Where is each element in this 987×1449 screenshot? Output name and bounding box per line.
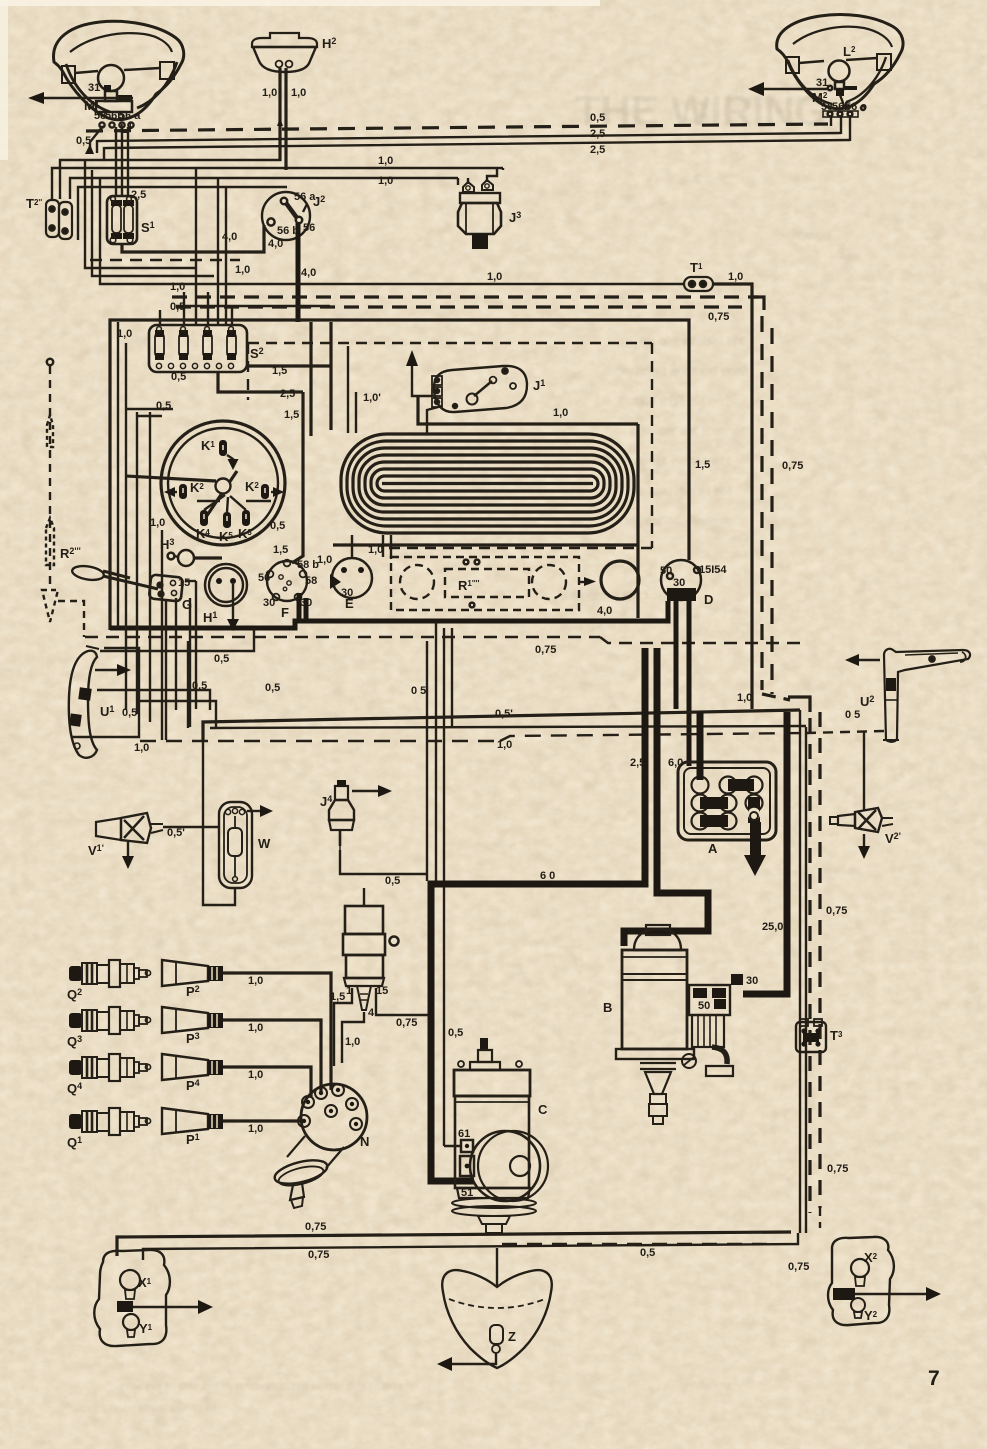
svg-text:0,5: 0,5	[171, 371, 186, 383]
svg-text:1,0: 1,0	[248, 1123, 263, 1135]
svg-text:0,75: 0,75	[308, 1249, 329, 1261]
svg-text:0,75: 0,75	[788, 1261, 809, 1273]
svg-text:1,0: 1,0	[248, 1069, 263, 1081]
svg-text:0,75: 0,75	[535, 644, 556, 656]
svg-text:0,5: 0,5	[170, 301, 185, 313]
svg-text:30: 30	[673, 577, 685, 589]
svg-text:1,0: 1,0	[317, 554, 332, 566]
svg-text:56: 56	[303, 222, 315, 234]
svg-text:0,5: 0,5	[640, 1247, 655, 1259]
svg-text:58: 58	[305, 575, 317, 587]
svg-text:58 b: 58 b	[297, 559, 319, 571]
svg-text:1,0: 1,0	[345, 1036, 360, 1048]
svg-text:6 0: 6 0	[540, 870, 555, 882]
svg-text:1,5: 1,5	[272, 365, 287, 377]
svg-text:B: B	[603, 1000, 612, 1015]
svg-text:hctiws thgil eht no: hctiws thgil eht no	[620, 393, 723, 408]
svg-text:srebmun: srebmun	[780, 228, 831, 243]
svg-text:1,5: 1,5	[284, 409, 299, 421]
svg-text:1,0: 1,0	[378, 155, 393, 167]
svg-text:1,0: 1,0	[235, 264, 250, 276]
svg-text:4,0: 4,0	[301, 267, 316, 279]
svg-text:1,5: 1,5	[695, 459, 710, 471]
svg-text:W: W	[258, 836, 271, 851]
svg-text:31: 31	[88, 82, 100, 94]
svg-text:eriw eht fo dne eht ta rotcenn: eriw eht fo dne eht ta rotcennoc eht kce…	[120, 1379, 403, 1393]
svg-text:30: 30	[746, 975, 758, 987]
svg-text:E: E	[345, 596, 354, 611]
svg-text:1,0: 1,0	[497, 739, 512, 751]
svg-text:0,75: 0,75	[708, 311, 729, 323]
svg-text:1,0: 1,0	[553, 407, 568, 419]
svg-text:2,5: 2,5	[131, 189, 146, 201]
svg-text:lanimret eht morf eriw: lanimret eht morf eriw	[620, 363, 746, 378]
svg-text:0,75: 0,75	[305, 1221, 326, 1233]
svg-text:0,75: 0,75	[827, 1163, 848, 1175]
svg-text:eriw: eriw	[840, 249, 862, 263]
svg-text:0 5: 0 5	[845, 709, 860, 721]
svg-text:0,75: 0,75	[782, 460, 803, 472]
svg-text:4,0: 4,0	[597, 605, 612, 617]
svg-text:25,0: 25,0	[762, 921, 783, 933]
svg-text:0,5: 0,5	[265, 682, 280, 694]
svg-text:0,5: 0,5	[448, 1027, 463, 1039]
svg-text:1,0: 1,0	[150, 517, 165, 529]
svg-text:1,0': 1,0'	[363, 392, 381, 404]
svg-text:THE WIRING: THE WIRING	[575, 87, 827, 134]
svg-text:1,0: 1,0	[378, 175, 393, 187]
svg-text:56: 56	[258, 572, 270, 584]
svg-text:31: 31	[816, 77, 828, 89]
svg-text:1,0: 1,0	[487, 271, 502, 283]
svg-text:1,5: 1,5	[273, 544, 288, 556]
svg-text:0,5: 0,5	[192, 680, 207, 692]
svg-text:50: 50	[698, 1000, 710, 1012]
svg-text:eb noit allatsni eht: eb noit allatsni eht	[640, 333, 745, 348]
svg-text:gniriw eht: gniriw eht	[680, 1379, 732, 1393]
svg-text:0,5': 0,5'	[495, 708, 513, 720]
svg-text:50: 50	[660, 565, 672, 577]
svg-text:C: C	[538, 1102, 548, 1117]
svg-text:4: 4	[368, 1007, 375, 1019]
svg-text:F: F	[281, 605, 289, 620]
svg-text:15: 15	[178, 577, 190, 589]
svg-text:1,0: 1,0	[248, 975, 263, 987]
svg-text:7: 7	[928, 1367, 940, 1390]
svg-text:4,0: 4,0	[222, 231, 237, 243]
svg-text:51: 51	[461, 1187, 473, 1199]
svg-text:15I54: 15I54	[699, 564, 727, 576]
svg-text:2,5: 2,5	[590, 128, 605, 140]
svg-text:0,75: 0,75	[396, 1017, 417, 1029]
svg-text:1,0: 1,0	[117, 328, 132, 340]
svg-text:0,5: 0,5	[214, 653, 229, 665]
svg-text:0,5: 0,5	[385, 875, 400, 887]
svg-text:56 a: 56 a	[119, 110, 141, 122]
svg-text:0,5: 0,5	[156, 400, 171, 412]
svg-text:6,0: 6,0	[668, 757, 683, 769]
svg-text:61: 61	[458, 1128, 470, 1140]
svg-text:1,0: 1,0	[262, 87, 277, 99]
svg-text:0,5: 0,5	[122, 707, 137, 719]
svg-text:0,5: 0,5	[270, 520, 285, 532]
svg-text:1,0: 1,0	[291, 87, 306, 99]
svg-text:D: D	[704, 592, 713, 607]
svg-text:eb tsum seriw eht: eb tsum seriw eht	[630, 483, 732, 498]
svg-text:detcennoc era slanimret: detcennoc era slanimret	[80, 1401, 209, 1415]
svg-text:A: A	[708, 841, 718, 856]
svg-text:0,5': 0,5'	[167, 827, 185, 839]
svg-text:15: 15	[376, 985, 388, 997]
svg-text:Z: Z	[508, 1329, 516, 1344]
svg-text:2,5: 2,5	[280, 388, 295, 400]
svg-text:1,0: 1,0	[134, 742, 149, 754]
svg-text:0 5: 0 5	[411, 685, 426, 697]
svg-text:30: 30	[263, 597, 275, 609]
svg-text:4,0: 4,0	[268, 238, 283, 250]
svg-text:N: N	[360, 1134, 369, 1149]
svg-text:1,0: 1,0	[248, 1022, 263, 1034]
svg-text:1,0: 1,0	[368, 544, 383, 556]
svg-text:0,5: 0,5	[590, 112, 605, 124]
svg-text:0,75: 0,75	[826, 905, 847, 917]
svg-text:2,5: 2,5	[590, 144, 605, 156]
svg-text:1,0: 1,0	[737, 692, 752, 704]
svg-text:1,0: 1,0	[728, 271, 743, 283]
